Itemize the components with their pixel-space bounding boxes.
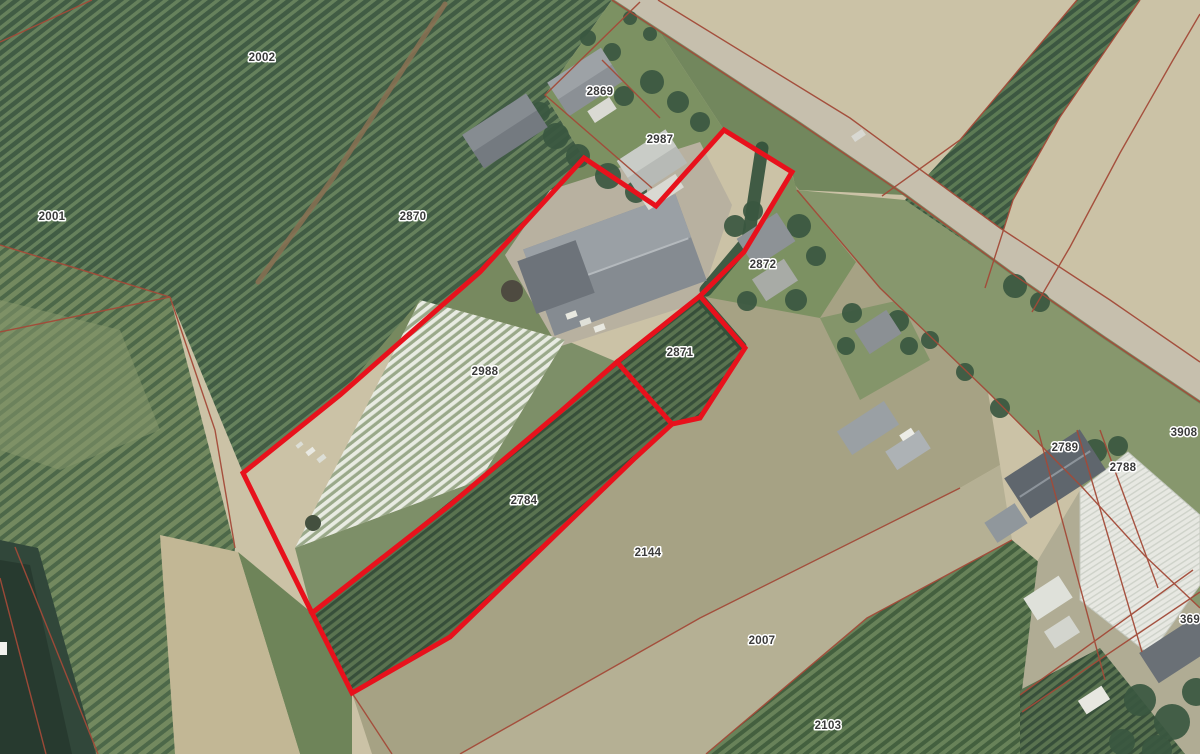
tree-blob	[1108, 436, 1128, 456]
tree-blob	[724, 215, 746, 237]
tree-blob	[1154, 704, 1190, 740]
aerial-map-canvas: 2002286929872870200128722871298827842144…	[0, 0, 1200, 754]
parcel-label-2789: 2789	[1052, 442, 1079, 454]
tree-blob	[1003, 274, 1027, 298]
tree-blob	[900, 337, 918, 355]
parcel-label-2788: 2788	[1110, 462, 1137, 474]
parcel-label-2869: 2869	[587, 86, 614, 98]
parcel-label-2784: 2784	[511, 495, 538, 507]
tree-blob	[921, 331, 939, 349]
tree-blob	[842, 303, 862, 323]
tree-blob	[743, 201, 763, 221]
tree-blob	[667, 91, 689, 113]
tree-blob	[640, 70, 664, 94]
parcel-label-369: 369	[1180, 614, 1200, 626]
parcel-label-2987: 2987	[647, 134, 674, 146]
tree-blob	[623, 11, 637, 25]
parcel-label-2144: 2144	[635, 547, 662, 559]
parcel-label-3908: 3908	[1171, 427, 1198, 439]
tree-blob	[837, 337, 855, 355]
object-dark-spot	[305, 515, 321, 531]
parcel-label-2103: 2103	[815, 720, 842, 732]
parcel-label-2870: 2870	[400, 211, 427, 223]
parcel-label-2002: 2002	[249, 52, 276, 64]
tree-blob	[1109, 729, 1135, 754]
object-partial-label	[0, 642, 7, 655]
tree-blob	[785, 289, 807, 311]
tree-blob	[737, 291, 757, 311]
parcel-label-2872: 2872	[750, 259, 777, 271]
map-viewport[interactable]: 2002286929872870200128722871298827842144…	[0, 0, 1200, 754]
parcel-label-2871: 2871	[667, 347, 694, 359]
tree-blob	[1124, 684, 1156, 716]
parcel-label-2988: 2988	[472, 366, 499, 378]
tree-blob	[806, 246, 826, 266]
tree-blob	[956, 363, 974, 381]
tree-blob	[643, 27, 657, 41]
tree-blob	[990, 398, 1010, 418]
parcel-label-2001: 2001	[39, 211, 66, 223]
tree-blob	[690, 112, 710, 132]
tree-blob	[580, 30, 596, 46]
parcel-label-2007: 2007	[749, 635, 776, 647]
object-silo-pit	[501, 280, 523, 302]
